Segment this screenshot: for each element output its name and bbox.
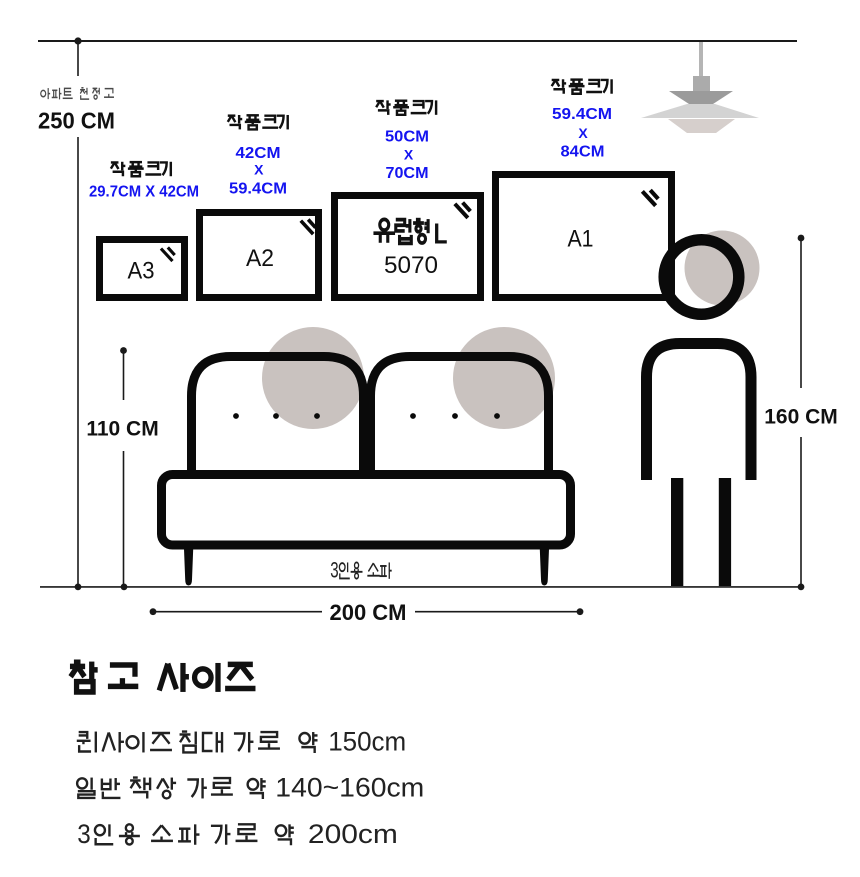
svg-text:150cm: 150cm — [328, 727, 406, 757]
svg-text:X: X — [578, 125, 588, 141]
svg-text:3: 3 — [330, 558, 338, 583]
svg-text:A2: A2 — [246, 245, 274, 272]
svg-text:84CM: 84CM — [561, 144, 605, 161]
svg-text:L: L — [434, 218, 448, 250]
svg-text:140~160cm: 140~160cm — [275, 773, 424, 803]
svg-text:70CM: 70CM — [386, 165, 429, 182]
svg-text:X: X — [404, 147, 414, 163]
svg-text:29.7CM X 42CM: 29.7CM X 42CM — [89, 183, 199, 200]
svg-text:50CM: 50CM — [385, 129, 429, 146]
svg-text:59.4CM: 59.4CM — [229, 180, 287, 197]
svg-text:160 CM: 160 CM — [764, 405, 838, 428]
svg-text:5070: 5070 — [384, 252, 438, 279]
svg-text:200 CM: 200 CM — [329, 600, 406, 625]
svg-text:59.4CM: 59.4CM — [552, 106, 612, 123]
svg-text:42CM: 42CM — [236, 145, 281, 162]
svg-text:250 CM: 250 CM — [38, 108, 115, 134]
svg-text:3: 3 — [77, 819, 91, 849]
svg-text:200cm: 200cm — [308, 819, 398, 849]
svg-text:X: X — [254, 162, 264, 178]
svg-text:110 CM: 110 CM — [86, 417, 158, 440]
svg-text:A3: A3 — [128, 258, 155, 285]
svg-text:A1: A1 — [568, 225, 594, 252]
